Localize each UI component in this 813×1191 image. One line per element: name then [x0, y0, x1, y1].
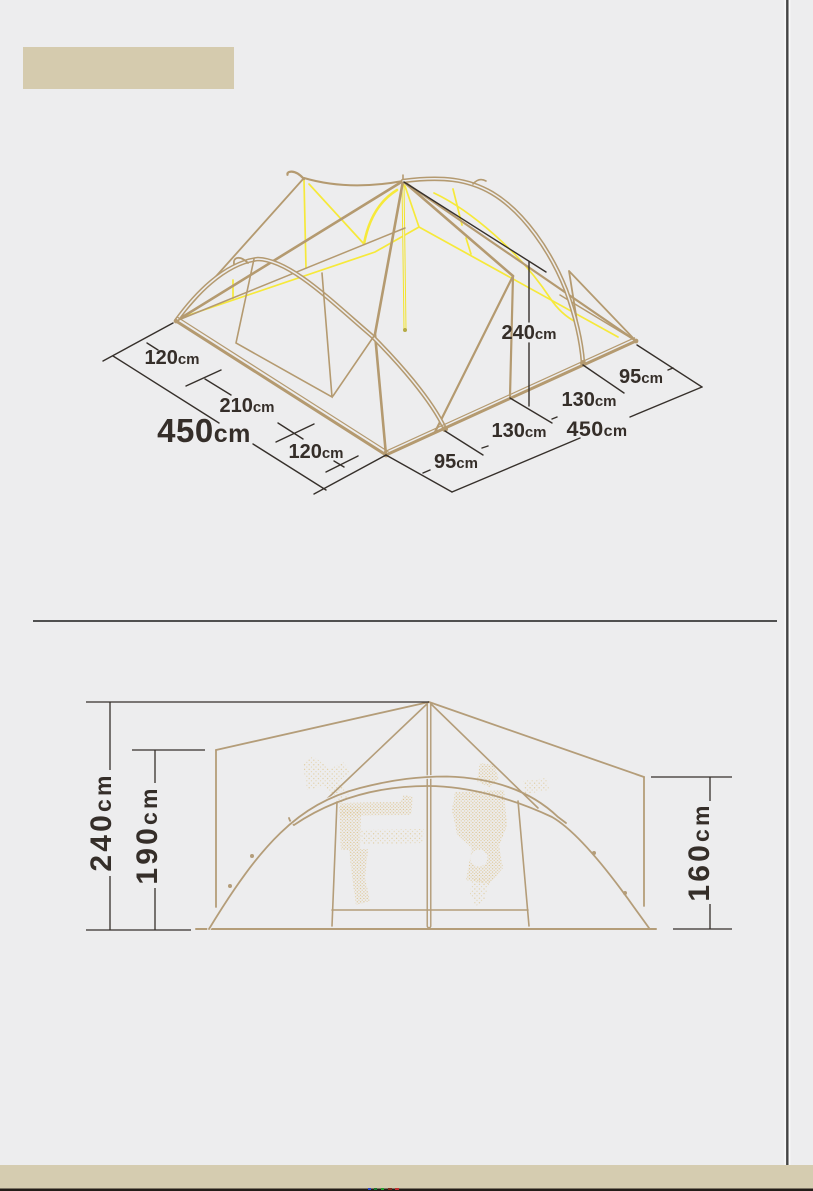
svg-text:240cm: 240cm [85, 772, 118, 871]
svg-text:95cm: 95cm [619, 366, 663, 388]
svg-text:95cm: 95cm [434, 451, 478, 473]
svg-text:120cm: 120cm [288, 441, 343, 463]
svg-text:160cm: 160cm [683, 802, 716, 901]
svg-text:210cm: 210cm [219, 395, 274, 417]
svg-text:240cm: 240cm [501, 322, 556, 344]
svg-text:190cm: 190cm [131, 785, 164, 884]
svg-text:120cm: 120cm [144, 347, 199, 369]
svg-text:130cm: 130cm [491, 420, 546, 442]
svg-text:130cm: 130cm [561, 389, 616, 411]
